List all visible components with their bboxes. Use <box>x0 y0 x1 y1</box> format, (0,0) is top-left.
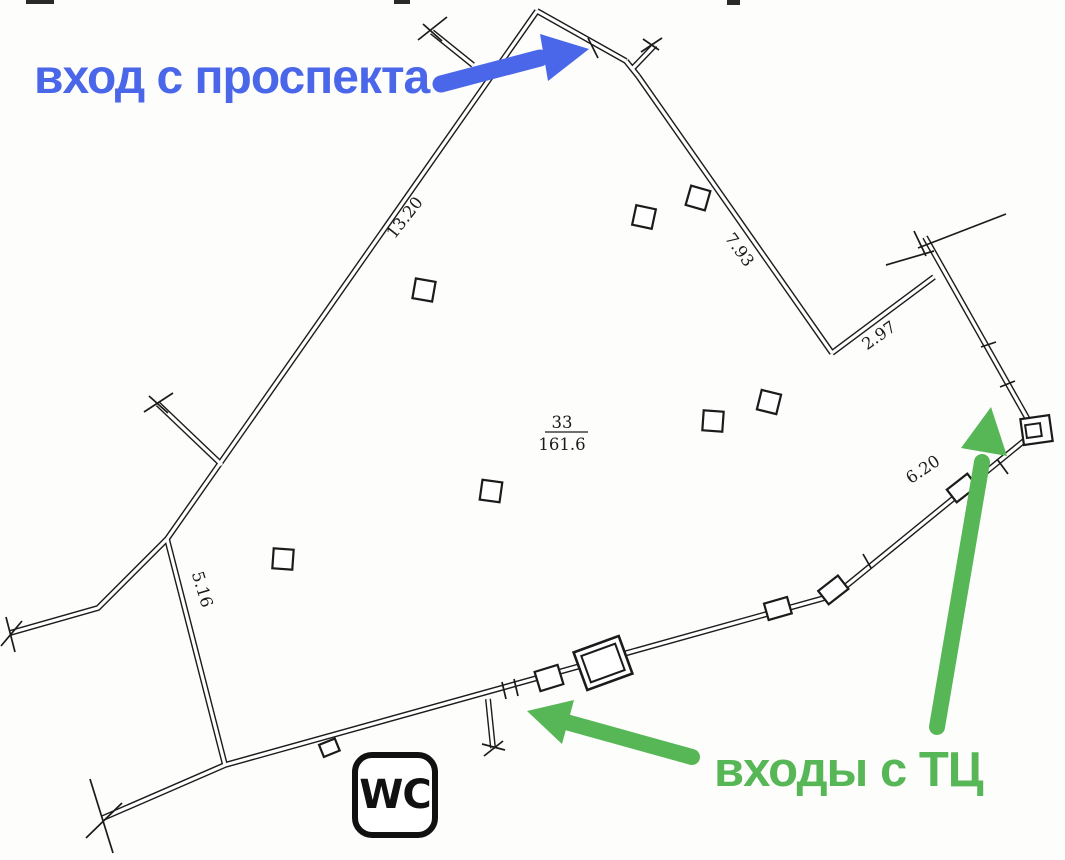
green-arrow-left-shaft <box>566 722 692 757</box>
dimension-label-5-16: 5.16 <box>188 569 217 610</box>
wc-label: WC <box>359 772 430 818</box>
dimension-label-6-20: 6.20 <box>902 451 943 487</box>
floor-plan-screenshot: 13.20 7.93 2.97 6.20 5.16 33 161.6 вход … <box>0 0 1065 860</box>
wall-left-corridor <box>10 539 167 633</box>
door-marker <box>319 739 340 757</box>
room-number-label: 33 <box>552 413 573 432</box>
wall-tick <box>86 803 122 838</box>
column-marker <box>632 205 656 229</box>
scan-artifact <box>394 0 410 4</box>
wall-7-93 <box>638 76 832 353</box>
wall-outline <box>10 11 1035 818</box>
column-marker <box>702 410 723 431</box>
wall-tick <box>418 17 447 40</box>
door-marker <box>764 597 792 620</box>
blue-arrow-head <box>540 34 589 81</box>
entrances-mall-label: входы с ТЦ <box>714 746 983 795</box>
dimension-label-2-97: 2.97 <box>858 317 899 354</box>
wall-tick <box>886 251 934 265</box>
scan-artifact <box>26 0 54 4</box>
green-arrow-up-head <box>961 407 1007 456</box>
column-marker <box>412 278 435 301</box>
wall-right <box>925 237 1035 432</box>
door-marker <box>535 665 564 691</box>
wall-left-corridor <box>10 539 167 633</box>
wall-stub-apex <box>633 45 655 68</box>
scan-artifact <box>727 0 740 5</box>
wall-tick <box>914 231 926 256</box>
column-marker <box>686 186 711 211</box>
extension-line <box>918 214 1006 248</box>
entrance-avenue-label: вход с проспекта <box>34 54 429 102</box>
green-arrow-up-shaft <box>937 462 982 727</box>
wall-outline <box>10 11 1035 818</box>
floor-plan: 13.20 7.93 2.97 6.20 5.16 33 161.6 <box>0 0 1065 860</box>
column-marker <box>757 390 781 414</box>
wall-tick <box>144 393 173 412</box>
wall-ticks <box>1 17 1015 853</box>
column-marker <box>480 480 503 503</box>
room-area-label: 161.6 <box>538 435 585 454</box>
wall-tick <box>423 24 442 41</box>
wc-badge: WC <box>352 752 438 838</box>
vestibule-marker <box>574 636 633 690</box>
green-arrow-left-head <box>527 700 574 744</box>
column-marker <box>272 548 293 569</box>
